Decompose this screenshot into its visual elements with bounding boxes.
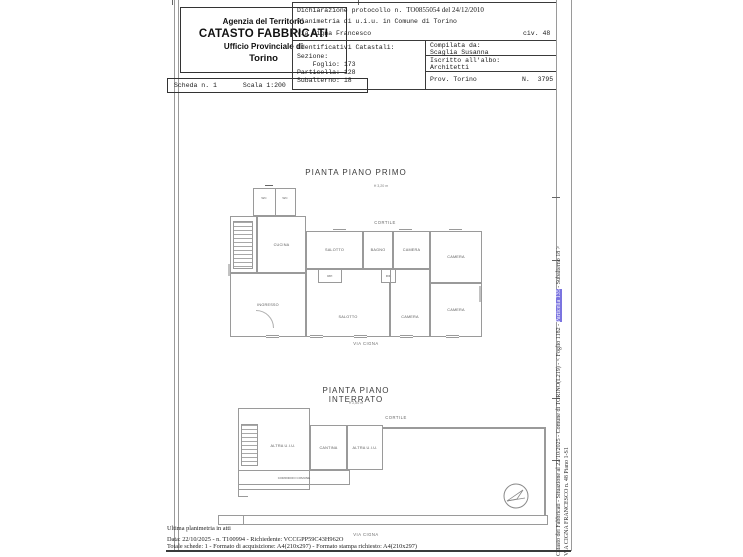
window-symbol bbox=[333, 229, 346, 232]
subalterno-row: Subalterno: 18 bbox=[297, 77, 352, 84]
declaration-protocol-line: Dichiarazione protocollo n. TO0855054 de… bbox=[297, 6, 484, 14]
illegible-micro-label bbox=[228, 264, 230, 276]
registration-mark bbox=[172, 0, 173, 5]
plan1-wc-divider bbox=[275, 188, 276, 216]
room-cantina: CANTINA bbox=[310, 425, 347, 470]
plan1-cortile-label: CORTILE bbox=[365, 220, 405, 225]
identificativi-title: Identificativi Catastali: bbox=[297, 44, 395, 51]
sidebar-reference-line: Catasto dei Fabbricati - Situazione al 2… bbox=[556, 184, 564, 556]
foglio-value: 173 bbox=[344, 61, 356, 68]
room-label: BAGNO bbox=[371, 248, 386, 252]
illegible-micro-label bbox=[479, 286, 481, 302]
room-cucina: CUCINA bbox=[257, 216, 306, 273]
room-label: CAMERA bbox=[447, 255, 464, 259]
room-bagno: BAGNO bbox=[363, 231, 393, 269]
form-line bbox=[292, 89, 556, 90]
room-label: WC bbox=[261, 196, 266, 200]
particella-value: 128 bbox=[344, 69, 356, 76]
footer-request-info: Data: 22/10/2025 - n. T100994 - Richiede… bbox=[167, 536, 343, 543]
window-symbol bbox=[354, 335, 367, 338]
foglio-row: Foglio: 173 bbox=[297, 61, 356, 68]
form-line bbox=[292, 2, 293, 90]
particella-label: Particella: bbox=[297, 69, 344, 76]
room-label: ALTRA U.I.U. bbox=[271, 444, 296, 448]
room-wc-2: WC bbox=[277, 194, 293, 202]
plan2-cortile-label: CORTILE bbox=[378, 415, 414, 420]
albo-value: Architetti bbox=[430, 64, 469, 71]
cadastral-document-page: Agenzia del Territorio CATASTO FABBRICAT… bbox=[0, 0, 743, 557]
room-camera-top: CAMERA bbox=[393, 231, 430, 269]
particella-row: Particella: 128 bbox=[297, 69, 356, 76]
room-salotto-top: SALOTTO bbox=[306, 231, 363, 269]
plan1-title: PIANTA PIANO PRIMO bbox=[300, 168, 412, 177]
sezione-row: Sezione: bbox=[297, 53, 328, 60]
form-line bbox=[425, 40, 426, 90]
civico-value: civ. 48 bbox=[523, 30, 550, 37]
prov-label: Prov. bbox=[430, 76, 453, 83]
room-altra-uiu-2: ALTRA U.I.U. bbox=[347, 425, 383, 470]
window-symbol bbox=[446, 335, 459, 338]
plan2-street-label: VIA CIGNA bbox=[341, 532, 391, 537]
scheda-number: Scheda n. 1 bbox=[174, 82, 217, 89]
plan1-mark bbox=[265, 185, 273, 186]
footer-format-info: Totale schede: 1 - Formato di acquisizio… bbox=[167, 543, 417, 550]
form-line bbox=[425, 71, 556, 72]
scala-value: Scala 1:200 bbox=[243, 82, 286, 89]
sidebar-ref-highlight: Particella 135 bbox=[556, 289, 562, 322]
sidebar-address-line: VIA CIGNA FRANCESCO n. 48 Piano 1-S1 bbox=[564, 396, 572, 556]
window-symbol bbox=[310, 335, 323, 338]
protocol-date: 24/12/2010 bbox=[452, 6, 484, 14]
footer-note: Ultima planimetria in atti bbox=[167, 525, 231, 532]
plan1-street-label: VIA CIGNA bbox=[341, 341, 391, 346]
window-symbol bbox=[399, 229, 412, 232]
prov-row: Prov. Torino bbox=[430, 76, 477, 83]
room-label: SALOTTO bbox=[325, 248, 344, 252]
plan2-height-note: H 2,80 m bbox=[335, 401, 377, 405]
room-corridoio-comune: CORRIDOIO COMUNE bbox=[238, 470, 350, 485]
plan1-height-note: H 3,20 m bbox=[360, 184, 402, 188]
room-label: ALTRA U.I.U. bbox=[353, 446, 378, 450]
north-arrow-icon bbox=[502, 482, 530, 510]
sidebar-ref-post: - Subalterno 18 > bbox=[556, 246, 562, 289]
subalterno-value: 18 bbox=[344, 77, 352, 84]
room-camera-right: CAMERA bbox=[430, 231, 482, 283]
form-line bbox=[292, 2, 556, 3]
room-rip-1: RIP. bbox=[318, 269, 342, 283]
room-camera-b1: CAMERA bbox=[390, 269, 430, 337]
sidebar-ref-pre: Catasto dei Fabbricati - Situazione al 2… bbox=[556, 322, 562, 556]
plan2-strip-notch bbox=[243, 515, 244, 525]
window-symbol bbox=[266, 335, 279, 338]
foglio-label: Foglio: bbox=[297, 61, 344, 68]
albo-number-row: N. 3795 bbox=[522, 76, 553, 83]
compilata-name: Scaglia Susanna bbox=[430, 49, 489, 56]
plan2-cortile-wall bbox=[383, 427, 544, 429]
room-label: SALOTTO bbox=[338, 315, 357, 319]
form-line bbox=[292, 40, 556, 41]
protocol-del: del bbox=[440, 6, 452, 14]
protocol-prefix: Dichiarazione protocollo n. bbox=[297, 7, 406, 14]
room-label: WC bbox=[282, 196, 287, 200]
room-wc-1: WC bbox=[256, 194, 272, 202]
window-symbol bbox=[400, 335, 413, 338]
room-label: INGRESSO bbox=[257, 303, 279, 307]
protocol-number: TO0855054 bbox=[406, 6, 440, 14]
planimetria-line: Planimetria di u.i.u. in Comune di Torin… bbox=[297, 18, 457, 25]
room-label: CUCINA bbox=[274, 243, 290, 247]
room-label: CAMERA bbox=[447, 308, 464, 312]
stairs-symbol bbox=[233, 221, 253, 269]
room-label: CANTINA bbox=[319, 446, 337, 450]
room-camera-b2: CAMERA bbox=[430, 283, 482, 337]
stairs-symbol bbox=[241, 424, 258, 466]
room-label: CAMERA bbox=[403, 248, 420, 252]
room-label: CORRIDOIO COMUNE bbox=[278, 476, 310, 480]
plan2-right-wall bbox=[544, 427, 546, 515]
room-label: RIP. bbox=[327, 274, 333, 278]
albo-number-label: N. bbox=[522, 76, 538, 83]
subalterno-label: Subalterno: bbox=[297, 77, 344, 84]
plan2-step-wall bbox=[238, 496, 248, 497]
window-symbol bbox=[449, 229, 462, 232]
office-city: Torino bbox=[249, 53, 278, 64]
albo-number-value: 3795 bbox=[538, 76, 554, 83]
page-bottom-edge bbox=[166, 550, 571, 552]
prov-value: Torino bbox=[453, 76, 476, 83]
street-line: Via Cigna Francesco bbox=[297, 30, 371, 37]
plan2-street-strip bbox=[218, 515, 548, 525]
room-label: CAMERA bbox=[401, 315, 418, 319]
room-altra-uiu-1: ALTRA U.I.U. bbox=[258, 440, 308, 452]
